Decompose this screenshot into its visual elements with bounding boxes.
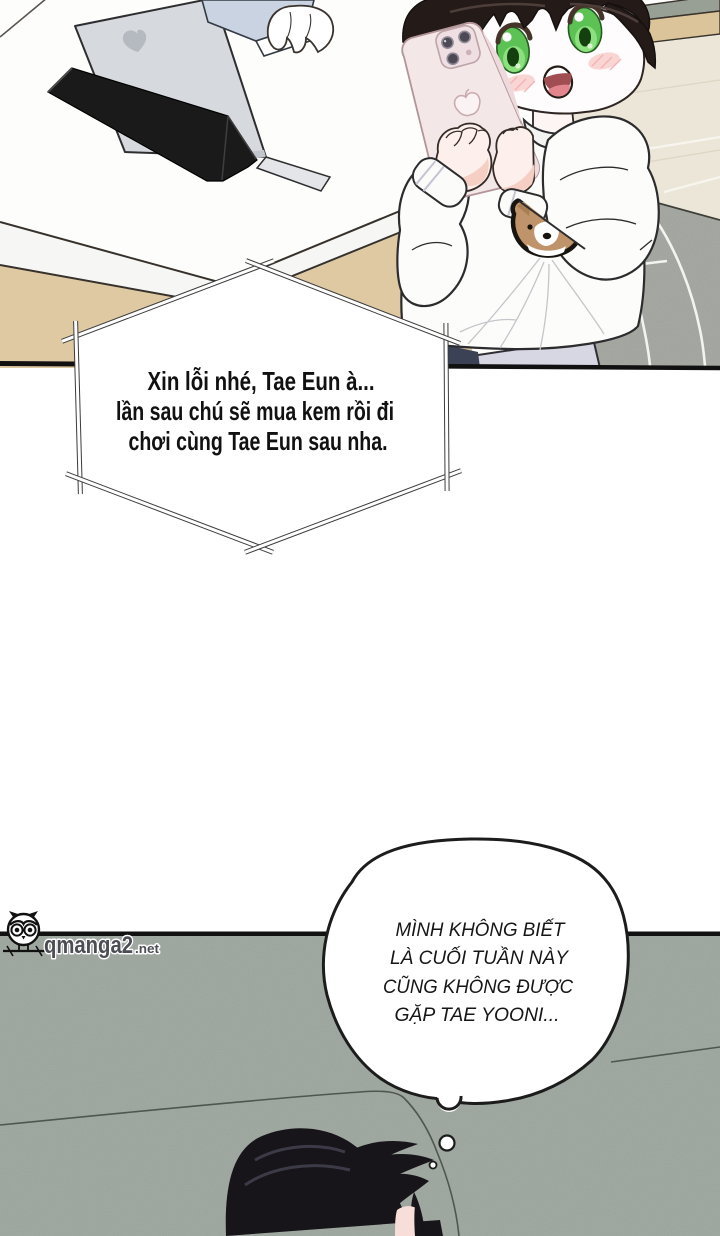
svg-text:CŨNG KHÔNG ĐƯỢC: CŨNG KHÔNG ĐƯỢC [383, 974, 574, 998]
svg-text:LÀ CUỐI TUẦN NÀY: LÀ CUỐI TUẦN NÀY [390, 945, 570, 969]
svg-text:lần sau chú sẽ mua kem rồi đi: lần sau chú sẽ mua kem rồi đi [116, 396, 394, 426]
svg-text:chơi cùng Tae Eun sau nha.: chơi cùng Tae Eun sau nha. [129, 426, 388, 456]
svg-text:MÌNH KHÔNG BIẾT: MÌNH KHÔNG BIẾT [396, 917, 567, 941]
svg-text:.net: .net [135, 941, 160, 956]
svg-text:GẶP TAE YOONI...: GẶP TAE YOONI... [395, 1003, 560, 1026]
svg-text:qmanga2: qmanga2 [44, 932, 133, 959]
svg-text:Xin lỗi nhé, Tae Eun à...: Xin lỗi nhé, Tae Eun à... [148, 366, 375, 396]
